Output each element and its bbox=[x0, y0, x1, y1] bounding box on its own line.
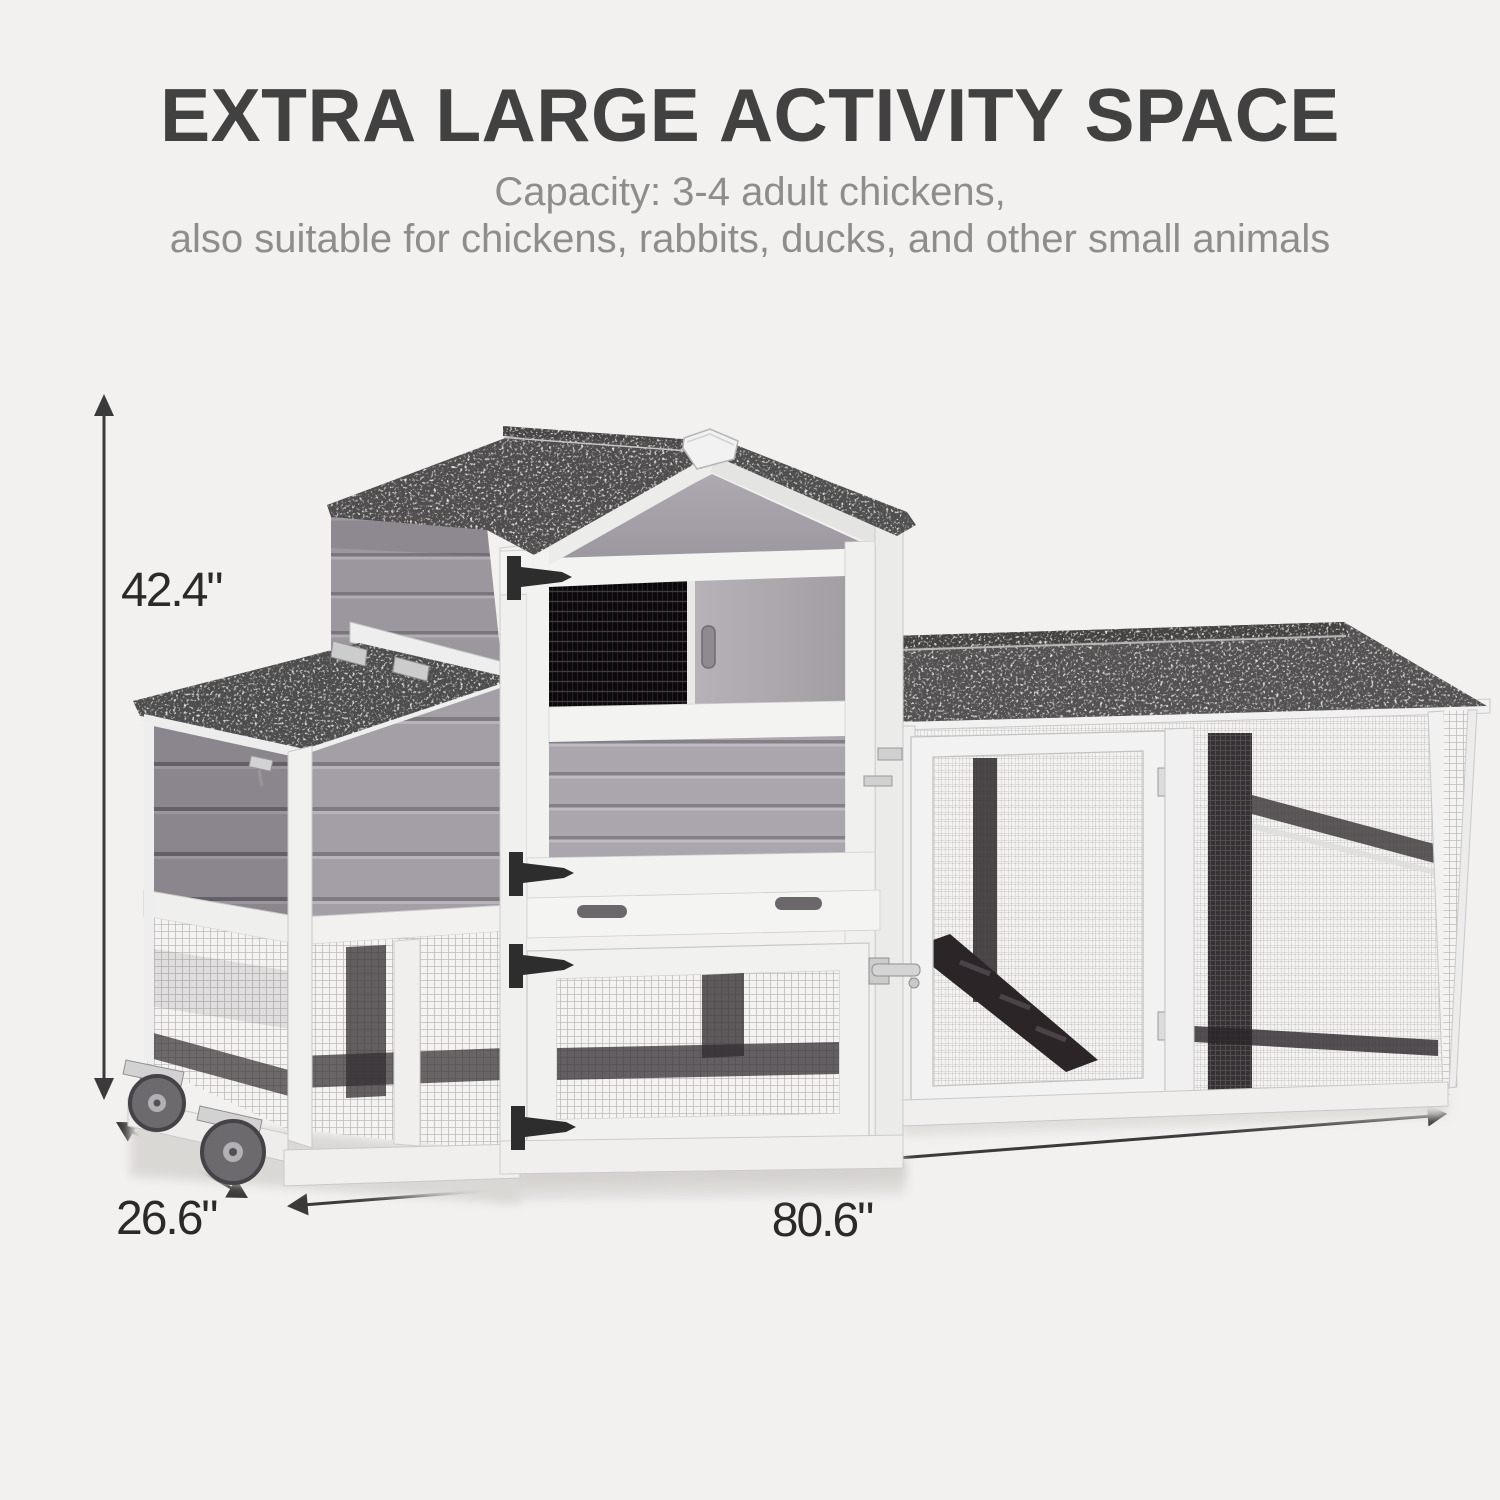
svg-text:EXTRA LARGE ACTIVITY SPACE: EXTRA LARGE ACTIVITY SPACE bbox=[160, 73, 1340, 157]
svg-text:80.6": 80.6" bbox=[772, 1194, 872, 1247]
svg-text:Capacity: 3-4 adult chickens,: Capacity: 3-4 adult chickens, bbox=[494, 170, 1005, 214]
svg-text:also suitable for chickens, ra: also suitable for chickens, rabbits, duc… bbox=[170, 217, 1331, 261]
svg-text:42.4": 42.4" bbox=[121, 564, 221, 617]
svg-text:26.6": 26.6" bbox=[116, 1192, 216, 1245]
